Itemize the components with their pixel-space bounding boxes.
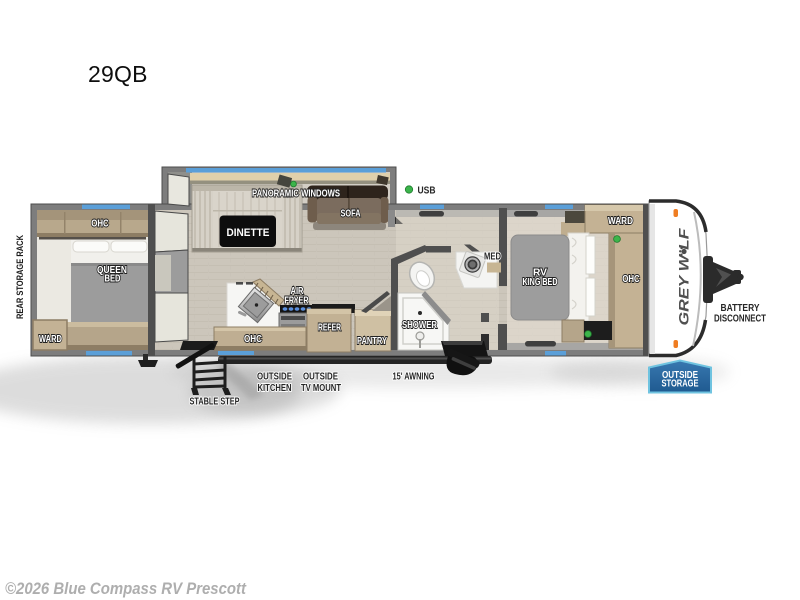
- svg-text:OUTSIDE: OUTSIDE: [257, 372, 292, 383]
- svg-text:USB: USB: [418, 186, 436, 197]
- svg-text:KING BED: KING BED: [523, 276, 558, 288]
- svg-text:MED: MED: [484, 252, 501, 263]
- svg-text:FRYER: FRYER: [285, 295, 309, 307]
- svg-text:29QB: 29QB: [88, 61, 148, 87]
- svg-text:15' AWNING: 15' AWNING: [393, 372, 435, 383]
- svg-text:GREY W LF: GREY W LF: [677, 228, 692, 326]
- svg-text:DINETTE: DINETTE: [227, 227, 270, 239]
- svg-text:KITCHEN: KITCHEN: [258, 383, 292, 394]
- svg-text:PANORAMIC WINDOWS: PANORAMIC WINDOWS: [252, 188, 340, 200]
- svg-text:REAR STORAGE RACK: REAR STORAGE RACK: [15, 235, 26, 319]
- svg-text:OHC: OHC: [622, 273, 640, 285]
- svg-text:PANTRY: PANTRY: [357, 335, 387, 347]
- svg-text:WARD: WARD: [39, 333, 62, 345]
- svg-text:BATTERY: BATTERY: [721, 303, 760, 314]
- svg-text:REFER: REFER: [318, 322, 341, 334]
- svg-text:OUTSIDE: OUTSIDE: [303, 372, 338, 383]
- svg-text:BED: BED: [105, 273, 121, 285]
- svg-text:SHOWER: SHOWER: [402, 319, 437, 331]
- svg-text:DISCONNECT: DISCONNECT: [714, 314, 766, 325]
- svg-text:OHC: OHC: [244, 333, 262, 345]
- svg-text:SOFA: SOFA: [341, 208, 361, 220]
- svg-text:OHC: OHC: [91, 218, 109, 230]
- svg-text:STORAGE: STORAGE: [662, 378, 699, 389]
- svg-text:TV MOUNT: TV MOUNT: [301, 383, 341, 394]
- svg-text:WARD: WARD: [608, 215, 633, 227]
- svg-text:©2026 Blue Compass RV Prescott: ©2026 Blue Compass RV Prescott: [5, 579, 247, 598]
- svg-text:STABLE STEP: STABLE STEP: [190, 397, 240, 408]
